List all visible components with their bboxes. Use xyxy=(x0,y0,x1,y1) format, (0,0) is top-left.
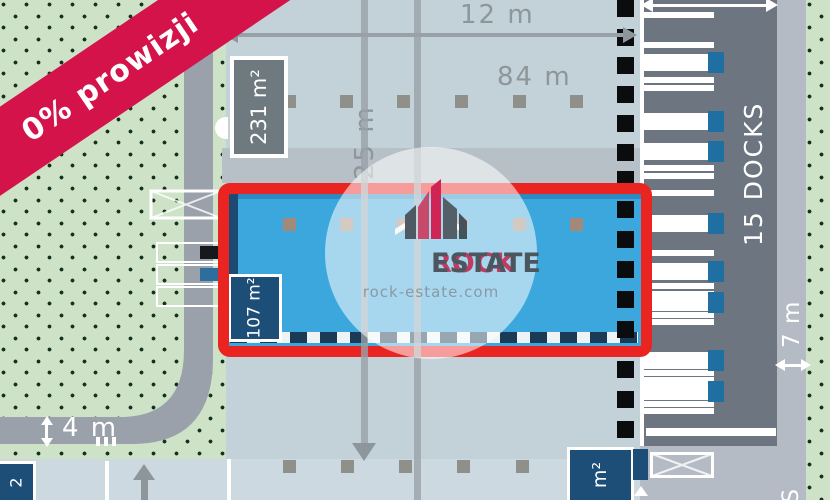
area-badge-231: 231 m² xyxy=(230,56,288,158)
up-arrow-shaft xyxy=(141,479,148,500)
pavement-divider-line xyxy=(105,461,109,500)
yard-truck-body xyxy=(644,143,712,160)
road-right xyxy=(777,0,806,500)
yard-truck-body xyxy=(644,294,712,311)
yard-truck-icon xyxy=(644,52,728,73)
column-marker-dot xyxy=(455,95,468,108)
yard-truck-dock-block xyxy=(708,261,724,282)
dock-door-square xyxy=(617,0,634,17)
dimension-hall-length: 84 m xyxy=(497,62,572,92)
yard-stripe xyxy=(644,250,714,256)
dimension-left-road: 4 m xyxy=(62,413,118,443)
yard-truck-icon xyxy=(644,261,728,282)
brand-website: rock-estate.com xyxy=(325,283,537,301)
dock-door-square xyxy=(617,361,634,378)
dock-door-square xyxy=(617,86,634,103)
arrowhead-left-icon xyxy=(641,0,653,12)
yard-truck-icon xyxy=(644,111,728,132)
yard-truck-dock-block xyxy=(708,52,724,73)
yard-truck-icon xyxy=(644,350,728,371)
yard-stripe xyxy=(644,408,714,414)
landscaping-right xyxy=(806,0,830,500)
dimension-right-road: 7 m xyxy=(779,292,805,348)
yard-stripe xyxy=(644,12,714,18)
yard-truck-body xyxy=(644,352,712,369)
yard-stripe-wide xyxy=(646,428,776,436)
yard-truck-dock-block xyxy=(708,350,724,371)
column-marker-dot xyxy=(457,460,470,473)
yard-stripe xyxy=(644,173,714,179)
yard-truck-body xyxy=(644,215,712,232)
yard-truck-body xyxy=(644,263,712,280)
area-badge-bottom-right: m² xyxy=(567,447,634,500)
up-arrow-icon xyxy=(133,464,155,480)
road-text-fragment: S xyxy=(779,475,804,500)
column-marker-dot xyxy=(399,460,412,473)
direction-marker-icon xyxy=(634,486,648,496)
dimension-top-width: 12 m xyxy=(460,0,535,30)
arrowhead-right-icon xyxy=(623,27,637,43)
yard-truck-dock-block xyxy=(708,292,724,313)
yard-stripe xyxy=(644,319,714,325)
column-marker-dot xyxy=(513,95,526,108)
truck-trailer-icon xyxy=(149,189,223,220)
yard-truck-icon xyxy=(644,292,728,313)
yard-stripe xyxy=(644,283,714,289)
brand-estate: ESTATE xyxy=(431,248,541,279)
yard-stripe xyxy=(644,85,714,91)
yard-truck-dock-block xyxy=(708,141,724,162)
yard-truck-dock-block xyxy=(708,111,724,132)
pavement-bottom xyxy=(0,459,640,500)
parking-stalls xyxy=(156,242,226,308)
column-marker-dot xyxy=(397,95,410,108)
yard-stripe xyxy=(644,190,714,196)
arrowhead-right-icon xyxy=(801,359,811,371)
truck-cab-icon xyxy=(633,449,648,480)
yard-truck-icon xyxy=(644,141,728,162)
yard-stripe xyxy=(644,77,714,83)
yard-truck-body xyxy=(644,113,712,130)
dock-door-square xyxy=(617,115,634,132)
pavement-divider-line xyxy=(227,459,231,500)
column-marker-dot xyxy=(341,460,354,473)
arrowhead-down-icon xyxy=(41,438,53,447)
yard-truck-body xyxy=(644,383,712,400)
arrowhead-right-icon xyxy=(766,0,778,12)
dock-door-square xyxy=(617,391,634,408)
site-plan-canvas: 12 m 84 m 25 m 231 m² 107 m² m² 2 15 DOC… xyxy=(0,0,830,500)
yard-dimension-line xyxy=(648,4,770,7)
watermark-circle: ROCKESTATE rock-estate.com xyxy=(325,147,537,359)
area-badge-bottom-left: 2 xyxy=(0,461,36,500)
yard-stripe xyxy=(644,42,714,48)
buildings-logo-icon xyxy=(391,177,471,243)
arrowhead-up-icon xyxy=(41,416,53,425)
dock-door-square xyxy=(617,57,634,74)
column-marker-dot xyxy=(570,95,583,108)
dimension-line-top xyxy=(235,33,627,37)
yard-stripe xyxy=(644,165,714,171)
yard-truck-dock-block xyxy=(708,381,724,402)
yard-truck-icon xyxy=(644,213,728,234)
column-marker-dot xyxy=(516,460,529,473)
yard-truck-dock-block xyxy=(708,213,724,234)
dock-door-square xyxy=(617,144,634,161)
yard-truck-body xyxy=(644,54,712,71)
yard-truck-icon xyxy=(644,381,728,402)
truck-trailer-icon xyxy=(650,452,714,478)
column-marker-dot xyxy=(283,460,296,473)
arrowhead-left-icon xyxy=(775,359,785,371)
dock-door-square xyxy=(617,421,634,438)
docks-count-label: 15 DOCKS xyxy=(739,81,768,246)
arrowhead-down-icon xyxy=(352,443,376,461)
